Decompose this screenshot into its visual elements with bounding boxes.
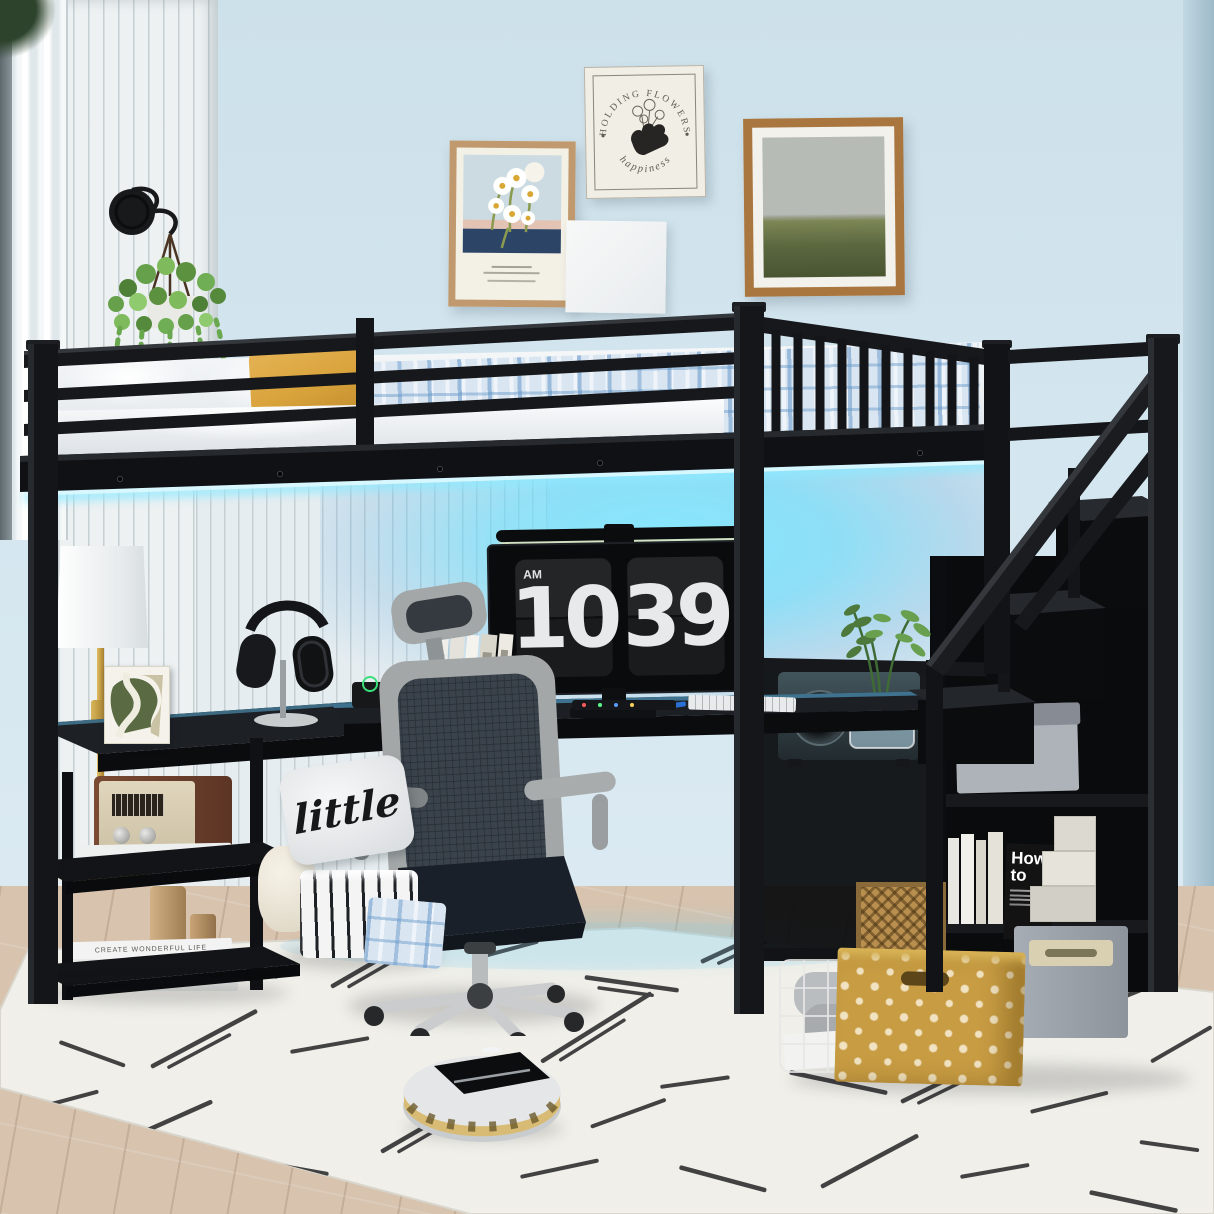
- loft-bed-product-photo: HOLDING FLOWERS happiness: [0, 0, 1214, 1214]
- metal-bed-frame: [0, 0, 1214, 1214]
- robot-vacuum: [400, 1032, 564, 1144]
